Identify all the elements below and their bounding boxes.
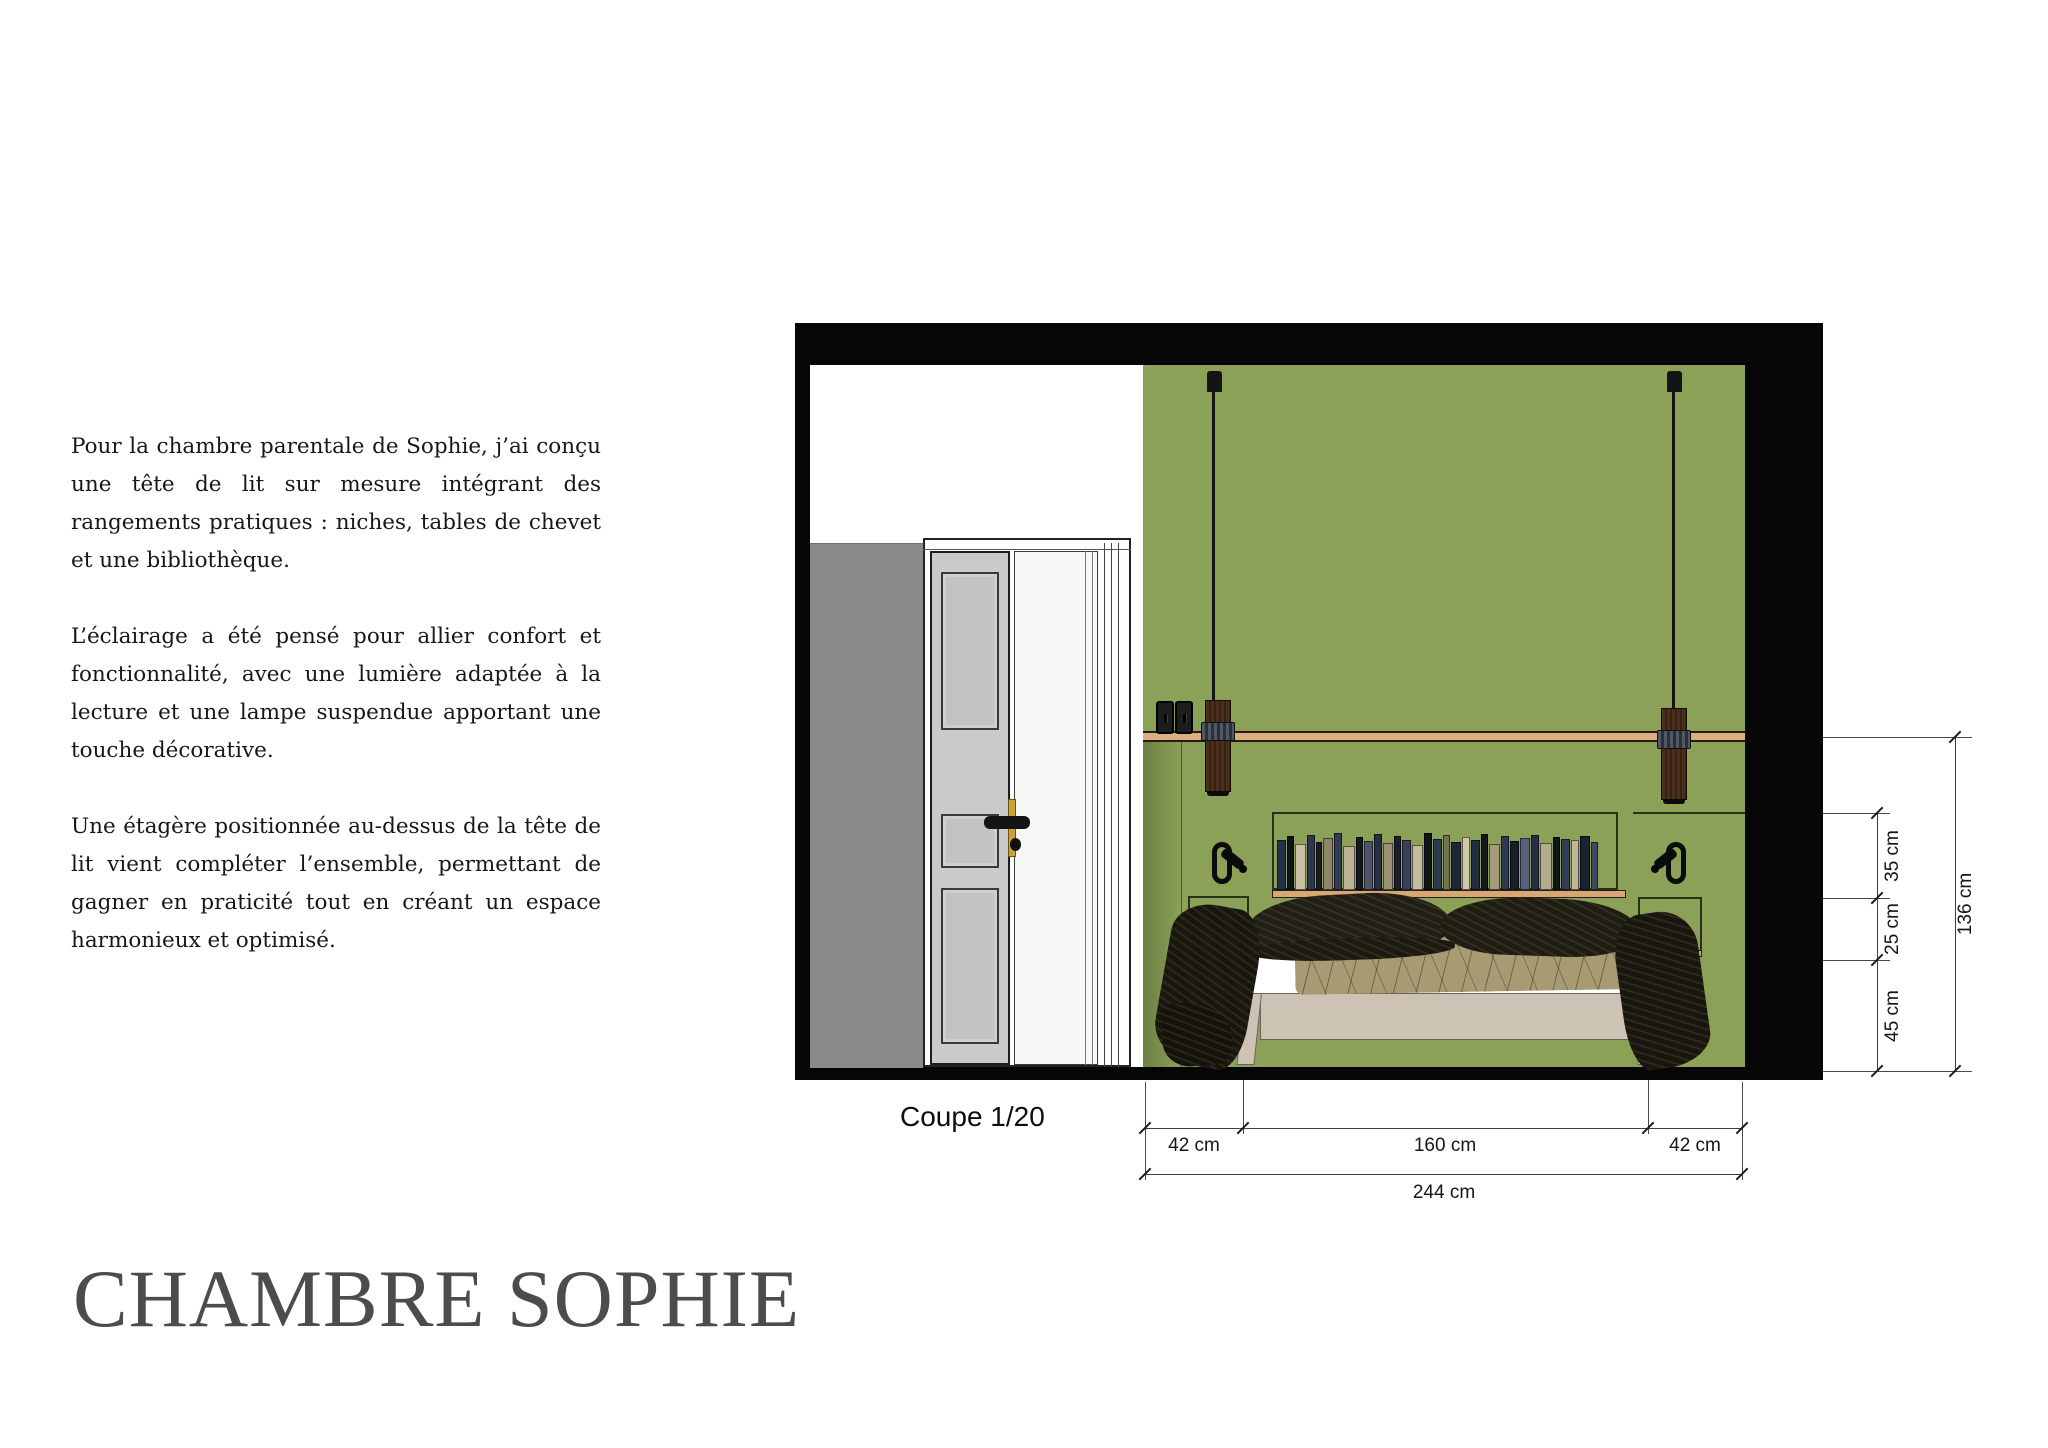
- door-leaf-edge-line: [1085, 551, 1086, 1065]
- door-leaf-paneled: [930, 551, 1010, 1065]
- book-spine: [1451, 842, 1461, 890]
- reading-sconce-left: [1206, 840, 1250, 886]
- door-panel-bottom: [941, 888, 999, 1044]
- book-spine: [1424, 833, 1432, 890]
- door-panel-top: [941, 572, 999, 730]
- book-spine: [1531, 835, 1539, 890]
- dimension-line-right-inner: [1877, 813, 1878, 1071]
- door-frame-top-line: [923, 549, 1131, 550]
- book-spine: [1501, 836, 1509, 890]
- book-spine: [1520, 838, 1530, 890]
- book-spine: [1402, 840, 1411, 890]
- page-title: CHAMBRE SOPHIE: [73, 1252, 800, 1346]
- book-spine: [1580, 836, 1590, 890]
- ceiling-mount-left: [1207, 371, 1222, 392]
- book-spine: [1443, 835, 1450, 890]
- book-spine: [1481, 834, 1488, 890]
- extension-line: [1145, 1082, 1146, 1180]
- book-spine: [1471, 840, 1480, 890]
- book-spine: [1307, 835, 1315, 890]
- book-spine: [1510, 841, 1519, 890]
- book-spine: [1412, 845, 1423, 890]
- sconce-knob: [1239, 865, 1247, 873]
- dim-label-160: 160 cm: [1385, 1136, 1505, 1156]
- pendant-cable-right: [1672, 392, 1675, 708]
- book-spine: [1316, 842, 1322, 890]
- book-spine: [1277, 840, 1286, 890]
- book-spine: [1334, 833, 1342, 890]
- wall-switch-unit: [1175, 701, 1193, 734]
- dim-label-244: 244 cm: [1384, 1183, 1504, 1203]
- book-spine: [1553, 837, 1560, 890]
- dim-label-42-left: 42 cm: [1134, 1136, 1254, 1156]
- extension-line: [1823, 813, 1890, 814]
- book-spine: [1356, 837, 1363, 890]
- pendant-shade-bottom: [1205, 740, 1231, 792]
- book-spine: [1287, 836, 1294, 890]
- intro-text: Pour la chambre parentale de Sophie, j’a…: [71, 428, 601, 960]
- book-spine: [1433, 839, 1442, 890]
- wall-switch: [1156, 701, 1194, 734]
- dim-label-136: 136 cm: [1956, 844, 1976, 964]
- intro-paragraph-2: L’éclairage a été pensé pour allier conf…: [71, 618, 601, 770]
- pendant-lamp-left: [1201, 700, 1235, 796]
- dimension-line-total: [1145, 1174, 1743, 1175]
- intro-paragraph-1: Pour la chambre parentale de Sophie, j’a…: [71, 428, 601, 580]
- pendant-lamp-right: [1657, 708, 1691, 804]
- pendant-cap: [1663, 799, 1685, 804]
- book-spine: [1571, 840, 1579, 890]
- dim-label-42-right: 42 cm: [1635, 1136, 1755, 1156]
- pendant-cable-left: [1212, 392, 1215, 700]
- pendant-ring: [1201, 722, 1235, 741]
- book-spine: [1489, 844, 1500, 890]
- portfolio-page: Pour la chambre parentale de Sophie, j’a…: [0, 0, 2048, 1448]
- book-spine: [1374, 834, 1382, 890]
- dim-label-45: 45 cm: [1883, 956, 1903, 1076]
- book-spine: [1591, 842, 1598, 890]
- ceiling-mount-right: [1667, 371, 1682, 392]
- door-handle-lever: [984, 816, 1030, 829]
- pendant-ring: [1657, 730, 1691, 749]
- pendant-shade-top: [1661, 708, 1687, 731]
- book-spine: [1295, 844, 1306, 890]
- door-jamb-line: [1111, 543, 1112, 1067]
- pendant-shade-top: [1205, 700, 1231, 723]
- door-jamb-line: [1118, 543, 1119, 1067]
- reading-sconce-right: [1648, 840, 1692, 886]
- intro-paragraph-3: Une étagère positionnée au-dessus de la …: [71, 808, 601, 960]
- side-wall-section: [810, 543, 923, 1068]
- book-spine: [1462, 837, 1470, 890]
- books-row: [1277, 832, 1617, 890]
- book-spine: [1383, 843, 1393, 890]
- extension-line: [1823, 960, 1890, 961]
- door-jamb-line: [1104, 543, 1105, 1067]
- book-spine: [1540, 843, 1552, 890]
- book-spine: [1364, 841, 1373, 890]
- book-spine: [1394, 836, 1401, 890]
- dimension-line-bottom: [1145, 1128, 1743, 1129]
- door-handle-knob: [1010, 838, 1021, 851]
- extension-line: [1823, 898, 1890, 899]
- extension-line: [1742, 1082, 1743, 1180]
- book-spine: [1561, 839, 1570, 890]
- extension-line: [1823, 737, 1972, 738]
- right-cabinet-top-line: [1633, 812, 1745, 814]
- bed-base: [1260, 993, 1632, 1040]
- book-spine: [1323, 838, 1333, 890]
- door-leaf-edge-line: [1092, 551, 1093, 1065]
- book-spine: [1343, 846, 1355, 890]
- drawing-caption: Coupe 1/20: [900, 1101, 1045, 1133]
- sconce-knob: [1651, 865, 1659, 873]
- pendant-cap: [1207, 791, 1229, 796]
- pendant-shade-bottom: [1661, 748, 1687, 800]
- wall-switch-unit: [1156, 701, 1174, 734]
